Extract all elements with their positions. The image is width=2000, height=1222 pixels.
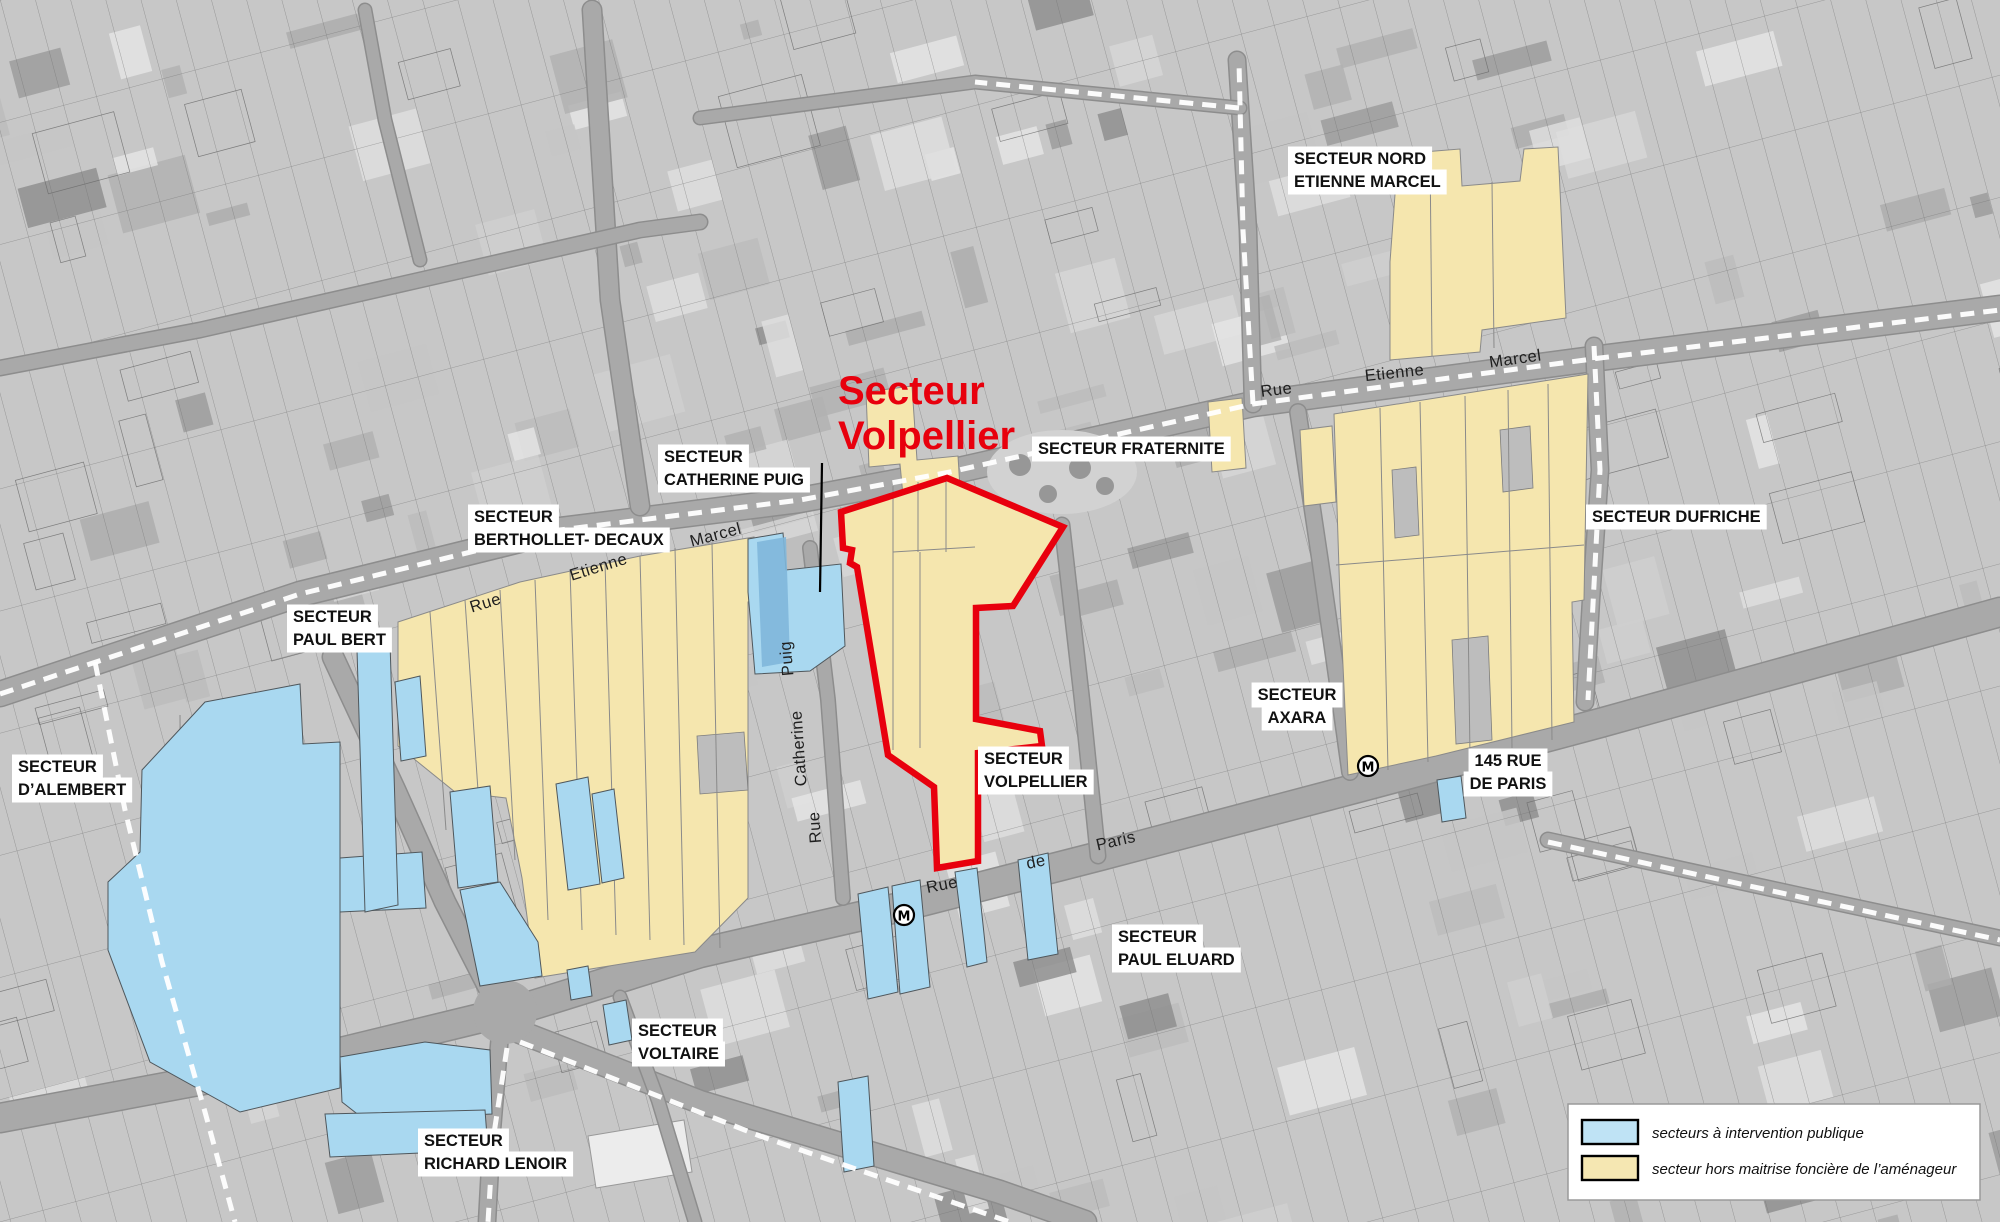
sector-label-text: SECTEUR [1118, 928, 1197, 946]
sector-label-text: DE PARIS [1470, 775, 1547, 793]
metro-icon: M [894, 905, 914, 925]
metro-letter-0: M [898, 910, 911, 925]
blue-sector-polygon-18 [567, 966, 592, 1000]
sector-label-text: SECTEUR [424, 1132, 503, 1150]
sector-label-text: AXARA [1268, 709, 1327, 727]
street-label-puig-9: Puig [777, 640, 798, 676]
map-canvas: RueEtienneMarcelRueEtienneMarcelRuedePar… [0, 0, 2000, 1222]
sector-label-145-rue-de-paris: 145 RUEDE PARIS [1464, 749, 1553, 797]
map-title-line-2: Volpellier [838, 414, 1015, 458]
sector-label-axara: SECTEURAXARA [1252, 683, 1343, 731]
tree-1 [1039, 485, 1057, 503]
sector-label-text: SECTEUR [664, 448, 743, 466]
sector-label-text: SECTEUR [474, 508, 553, 526]
yellow-sector-gap-3 [1392, 467, 1419, 538]
street-label-rue-11: Rue [805, 811, 825, 844]
croix-de-chavaux-junction [473, 980, 537, 1044]
metro-letter-1: M [1362, 761, 1375, 776]
sector-label-text: SECTEUR [293, 608, 372, 626]
sector-label-dufriche: SECTEUR DUFRICHE [1586, 505, 1767, 530]
sector-label-fraternite: SECTEUR FRATERNITE [1032, 437, 1231, 462]
sector-label-text: VOLTAIRE [638, 1045, 719, 1063]
blue-sector-polygon-15 [340, 1042, 492, 1120]
legend-swatch-public [1582, 1120, 1638, 1144]
tree-4 [1096, 477, 1114, 495]
sector-label-text: SECTEUR DUFRICHE [1592, 508, 1761, 526]
legend-swatch-hors-maitrise [1582, 1156, 1638, 1180]
sector-label-text: SECTEUR [1258, 686, 1337, 704]
sector-label-text: SECTEUR [984, 750, 1063, 768]
sector-label-text: ETIENNE MARCEL [1294, 173, 1441, 191]
sector-label-text: VOLPELLIER [984, 773, 1088, 791]
yellow-sector-gap-2 [697, 732, 748, 794]
sector-label-text: D’ALEMBERT [18, 781, 126, 799]
sector-label-text: 145 RUE [1475, 752, 1542, 770]
urban-sector-map: RueEtienneMarcelRueEtienneMarcelRuedePar… [0, 0, 2000, 1222]
blue-sector-polygon-17 [1437, 776, 1466, 822]
sector-label-text: SECTEUR [18, 758, 97, 776]
sector-label-text: PAUL ELUARD [1118, 951, 1235, 969]
legend-label-hors-maitrise: secteur hors maitrise foncière de l’amén… [1652, 1161, 1957, 1178]
metro-icon: M [1358, 756, 1378, 776]
legend-label-public: secteurs à intervention publique [1652, 1125, 1864, 1142]
legend-box [1568, 1104, 1980, 1200]
sector-label-text: BERTHOLLET- DECAUX [474, 531, 664, 549]
blue-sector-polygon-3 [395, 676, 426, 761]
map-title-line-1: Secteur [838, 369, 985, 413]
sector-label-text: SECTEUR NORD [1294, 150, 1426, 168]
yellow-sector-gap-0 [1452, 636, 1492, 744]
blue-sector-polygon-4 [450, 786, 498, 888]
sector-label-text: CATHERINE PUIG [664, 471, 804, 489]
sector-label-paul-bert: SECTEURPAUL BERT [287, 605, 392, 653]
sector-label-text: RICHARD LENOIR [424, 1155, 567, 1173]
sector-label-text: SECTEUR FRATERNITE [1038, 440, 1225, 458]
yellow-sector-polygon-5 [1300, 426, 1336, 506]
sector-label-text: SECTEUR [638, 1022, 717, 1040]
legend: secteurs à intervention publiquesecteur … [1568, 1104, 1980, 1200]
sector-label-nord-etienne-marcel: SECTEUR NORDETIENNE MARCEL [1288, 147, 1447, 195]
blue-sector-polygon-14 [838, 1076, 874, 1172]
sector-label-text: PAUL BERT [293, 631, 386, 649]
yellow-sector-gap-1 [1500, 426, 1533, 492]
street-label-rue-3: Rue [1260, 379, 1294, 401]
sector-label-voltaire: SECTEURVOLTAIRE [632, 1019, 725, 1067]
